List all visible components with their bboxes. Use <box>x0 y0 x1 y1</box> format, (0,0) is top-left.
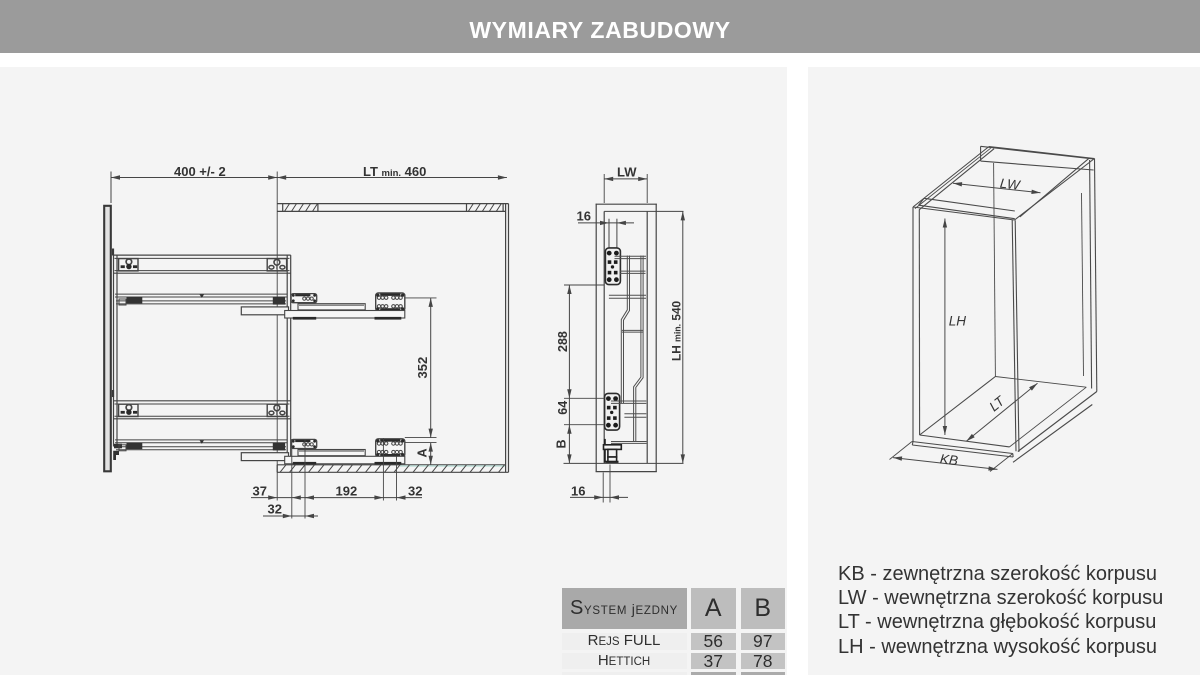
svg-text:LW: LW <box>999 176 1022 193</box>
svg-text:352: 352 <box>415 357 430 379</box>
svg-text:LT: LT <box>986 392 1008 414</box>
svg-text:64: 64 <box>556 401 570 415</box>
svg-text:16: 16 <box>571 484 585 499</box>
svg-text:A: A <box>416 448 430 457</box>
svg-text:LH min. 540: LH min. 540 <box>670 300 684 361</box>
svg-text:32: 32 <box>268 502 282 517</box>
svg-text:KB: KB <box>939 451 959 468</box>
svg-text:288: 288 <box>556 331 570 352</box>
svg-text:B: B <box>554 439 568 448</box>
svg-text:LT min. 460: LT min. 460 <box>363 164 426 179</box>
svg-text:400 +/- 2: 400 +/- 2 <box>174 164 226 179</box>
svg-text:37: 37 <box>253 483 267 498</box>
svg-text:192: 192 <box>336 483 358 498</box>
svg-text:LH: LH <box>949 314 967 329</box>
svg-text:LW: LW <box>617 164 637 179</box>
svg-text:32: 32 <box>408 483 422 498</box>
svg-text:16: 16 <box>577 209 591 224</box>
